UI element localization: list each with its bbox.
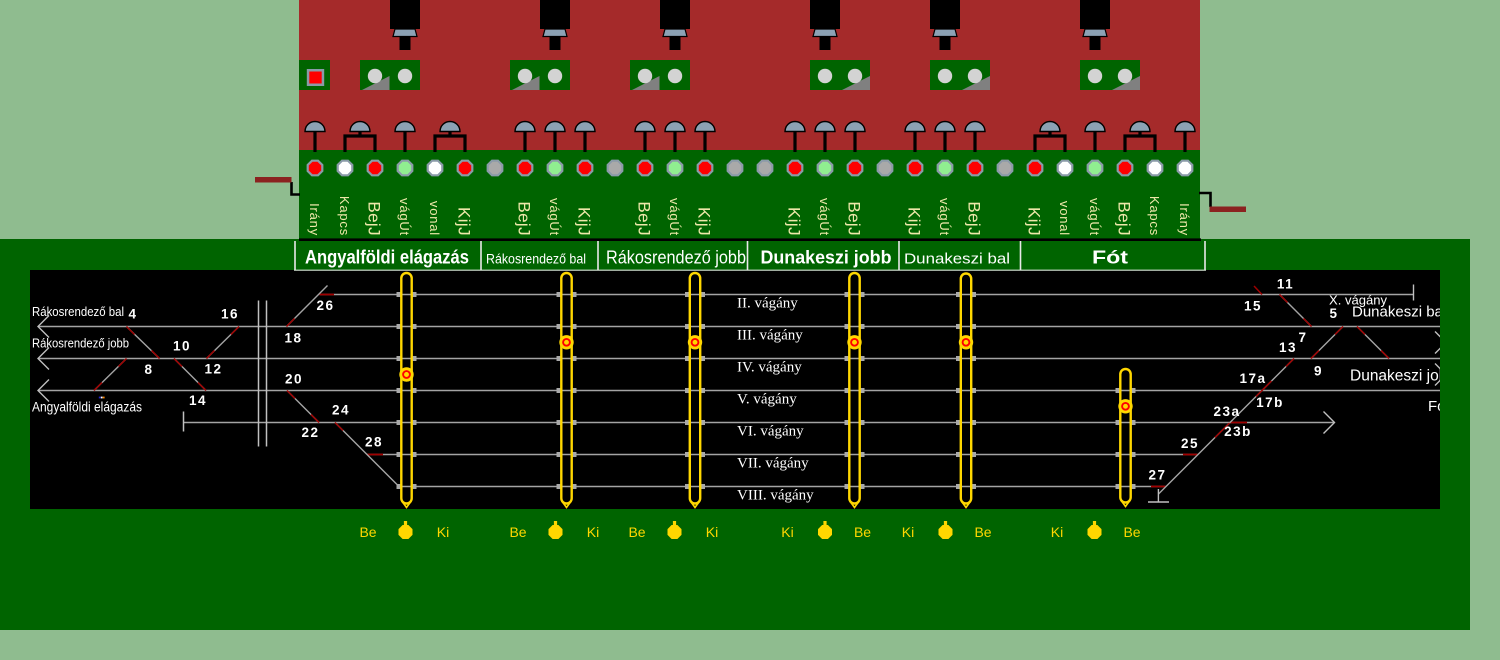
svg-text:vágÚt: vágÚt	[937, 198, 952, 236]
svg-text:KijJ: KijJ	[905, 207, 924, 236]
svg-text:Fót: Fót	[1092, 247, 1128, 268]
svg-text:BejJ: BejJ	[515, 201, 534, 236]
svg-text:28: 28	[365, 435, 383, 450]
svg-text:BejJ: BejJ	[965, 201, 984, 236]
svg-text:Angyalföldi elágazás: Angyalföldi elágazás	[32, 400, 142, 415]
svg-text:27: 27	[1148, 468, 1166, 483]
svg-text:vágÚt: vágÚt	[1087, 198, 1102, 236]
svg-text:Be: Be	[628, 524, 645, 540]
svg-text:Ki: Ki	[706, 524, 718, 540]
svg-text:Rákosrendező bal: Rákosrendező bal	[32, 304, 124, 319]
svg-text:vágÚt: vágÚt	[817, 198, 832, 236]
svg-text:12: 12	[204, 362, 222, 377]
svg-text:KijJ: KijJ	[1025, 207, 1044, 236]
svg-text:25: 25	[1181, 436, 1199, 451]
svg-text:16: 16	[221, 307, 239, 322]
svg-text:vágÚt: vágÚt	[667, 198, 682, 236]
svg-text:10: 10	[173, 339, 191, 354]
svg-text:Be: Be	[854, 524, 871, 540]
svg-text:Irány: Irány	[307, 203, 322, 236]
svg-text:13: 13	[1279, 340, 1297, 355]
svg-text:KijJ: KijJ	[695, 207, 714, 236]
svg-text:Ki: Ki	[781, 524, 793, 540]
svg-text:Be: Be	[974, 524, 991, 540]
svg-text:9: 9	[1314, 364, 1323, 379]
svg-text:26: 26	[316, 298, 334, 313]
svg-text:VIII. vágány: VIII. vágány	[737, 488, 814, 504]
svg-text:Irány: Irány	[1177, 203, 1192, 236]
svg-text:Be: Be	[1123, 524, 1140, 540]
svg-text:III. vágány: III. vágány	[737, 328, 803, 344]
svg-text:Rákosrendező jobb: Rákosrendező jobb	[32, 336, 129, 351]
svg-text:Kapcs: Kapcs	[1147, 196, 1162, 236]
svg-text:Be: Be	[509, 524, 526, 540]
svg-text:Dunakeszi bal: Dunakeszi bal	[904, 251, 1010, 268]
svg-text:IV. vágány: IV. vágány	[737, 360, 802, 376]
svg-text:8: 8	[144, 362, 153, 377]
svg-text:18: 18	[284, 331, 302, 346]
svg-text:Kapcs: Kapcs	[337, 196, 352, 236]
svg-text:14: 14	[189, 393, 207, 408]
svg-text:15: 15	[1244, 299, 1262, 314]
svg-text:BejJ: BejJ	[1115, 201, 1134, 236]
svg-text:Be: Be	[359, 524, 376, 540]
svg-text:BejJ: BejJ	[365, 201, 384, 236]
svg-text:Rákosrendező jobb: Rákosrendező jobb	[606, 248, 746, 268]
svg-text:20: 20	[285, 372, 303, 387]
svg-text:vonal: vonal	[1057, 201, 1072, 236]
svg-text:VII. vágány: VII. vágány	[737, 456, 809, 472]
svg-text:7: 7	[1298, 330, 1307, 345]
svg-text:vágÚt: vágÚt	[547, 198, 562, 236]
svg-text:11: 11	[1277, 277, 1294, 292]
svg-text:Dunakeszi bal: Dunakeszi bal	[1352, 304, 1446, 321]
svg-text:II. vágány: II. vágány	[737, 296, 798, 312]
svg-text:Ki: Ki	[1051, 524, 1063, 540]
svg-text:KijJ: KijJ	[455, 207, 474, 236]
svg-text:24: 24	[332, 403, 350, 418]
svg-text:17a: 17a	[1239, 371, 1266, 386]
svg-text:Angyalföldi elágazás: Angyalföldi elágazás	[305, 248, 469, 269]
svg-text:17b: 17b	[1256, 395, 1284, 410]
svg-text:KijJ: KijJ	[785, 207, 804, 236]
svg-text:Ki: Ki	[437, 524, 449, 540]
svg-text:KijJ: KijJ	[575, 207, 594, 236]
svg-text:vonal: vonal	[427, 201, 442, 236]
svg-text:VI. vágány: VI. vágány	[737, 424, 804, 440]
svg-text:Dunakeszi jobb: Dunakeszi jobb	[761, 247, 892, 268]
svg-text:V. vágány: V. vágány	[737, 392, 797, 408]
svg-text:BejJ: BejJ	[635, 201, 654, 236]
svg-text:4: 4	[128, 307, 137, 322]
svg-text:vágÚt: vágÚt	[397, 198, 412, 236]
svg-text:Ki: Ki	[587, 524, 599, 540]
svg-text:22: 22	[301, 425, 319, 440]
svg-text:Ki: Ki	[902, 524, 914, 540]
svg-text:BejJ: BejJ	[845, 201, 864, 236]
svg-text:Rákosrendező bal: Rákosrendező bal	[486, 252, 586, 267]
svg-text:5: 5	[1329, 306, 1338, 321]
svg-text:23b: 23b	[1224, 424, 1252, 439]
svg-text:23a: 23a	[1213, 404, 1240, 419]
